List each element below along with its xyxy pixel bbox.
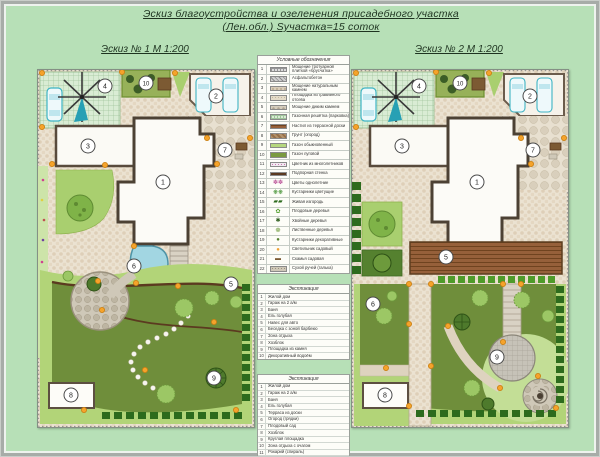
legend-row-label: Газон обыкновенный bbox=[290, 143, 349, 148]
explication-row-label: Круглая площадка bbox=[266, 437, 349, 442]
legend-swatch-shrub-flowering: ❋❋ bbox=[267, 189, 290, 198]
explication-row-label: Огород (грядки) bbox=[266, 417, 349, 422]
explication-row-number: 4 bbox=[258, 404, 266, 410]
flowers-icon: ✽✽ bbox=[273, 180, 283, 186]
plan1-drawing: 12345678910 bbox=[38, 70, 254, 427]
legend-swatch-soil bbox=[267, 132, 290, 141]
legend-swatch-lamp: ● bbox=[267, 246, 290, 255]
plot-marker-label: 6 bbox=[371, 302, 375, 309]
explication-row-number: 6 bbox=[258, 327, 266, 333]
legend-row: 18❁Лиственные деревья bbox=[258, 227, 349, 237]
plot-marker-label: 9 bbox=[495, 355, 499, 362]
explication-row-number: 8 bbox=[258, 430, 266, 436]
explication-row-label: Жилой дом bbox=[266, 384, 349, 389]
legend-row-number: 7 bbox=[258, 122, 267, 131]
wall-swatch bbox=[270, 172, 287, 176]
gravel-swatch bbox=[270, 95, 287, 101]
explication-row-number: 2 bbox=[258, 391, 266, 397]
legend-row-number: 5 bbox=[258, 103, 267, 112]
legend-swatch-wall bbox=[267, 170, 290, 179]
legend-row-label: Газон луговой bbox=[290, 152, 349, 157]
legend-row-label: Скамья садовая bbox=[290, 257, 349, 262]
legend-row-label: Светильник садовый bbox=[290, 247, 349, 252]
explication-row-number: 10 bbox=[258, 353, 266, 359]
plot-marker-label: 1 bbox=[161, 180, 165, 187]
shrub-flowering-icon: ❋❋ bbox=[273, 190, 283, 196]
legend-row-number: 2 bbox=[258, 75, 267, 84]
legend-row: 19●Кустарники декоративные bbox=[258, 236, 349, 246]
bench-icon: ▬ bbox=[275, 256, 281, 262]
legend-row-label: Хвойные деревья bbox=[290, 219, 349, 224]
legend-swatch-stream bbox=[267, 265, 290, 274]
wood-swatch bbox=[270, 124, 287, 130]
explication-row-number: 5 bbox=[258, 320, 266, 326]
conifer-icon: ✱ bbox=[275, 218, 280, 224]
plot-marker-label: 7 bbox=[531, 148, 535, 155]
legend-row-number: 22 bbox=[258, 265, 267, 274]
flowerbed-swatch bbox=[270, 162, 287, 168]
plot-marker-label: 2 bbox=[528, 94, 532, 101]
explication-row-label: Баня bbox=[266, 308, 349, 313]
explication-row-number: 7 bbox=[258, 424, 266, 430]
soil-swatch bbox=[270, 133, 287, 139]
legend-row-label: Настил из террасной доски bbox=[290, 124, 349, 129]
legend-row: 20●Светильник садовый bbox=[258, 246, 349, 256]
explication-row-number: 4 bbox=[258, 314, 266, 320]
legend-row-number: 16 bbox=[258, 208, 267, 217]
legend-row: 15▰▰Живая изгородь bbox=[258, 198, 349, 208]
legend-swatch-wood bbox=[267, 122, 290, 131]
explication-row-label: Беседка с зоной барбекю bbox=[266, 327, 349, 332]
explication-row-label: Плодовый сад bbox=[266, 424, 349, 429]
plot-marker-label: 10 bbox=[457, 82, 464, 88]
drawing-frame: Эскиз благоустройства и озеленения приса… bbox=[0, 0, 600, 457]
legend-swatch-lawn-light bbox=[267, 141, 290, 150]
explication-row-label: Гараж на 2 а/м bbox=[266, 391, 349, 396]
explication-row-label: Рокарий (спираль) bbox=[266, 450, 349, 455]
main-walk bbox=[409, 284, 431, 426]
legend-row-label: Площадка из гравийного отсева bbox=[290, 94, 349, 103]
plot-marker-label: 3 bbox=[86, 144, 90, 151]
explication-row-label: Декоративный водоём bbox=[266, 354, 349, 359]
plan-sheet-2: 12345678910 bbox=[351, 69, 569, 428]
legend-row-number: 21 bbox=[258, 255, 267, 264]
car-symbol bbox=[361, 88, 376, 121]
legend-row-number: 10 bbox=[258, 151, 267, 160]
explication-row-label: Зона отдыха bbox=[266, 334, 349, 339]
legend-table: Условные обозначения 1Мощение тротуарной… bbox=[257, 55, 350, 274]
asphalt-swatch bbox=[270, 76, 287, 82]
legend-swatch-tree-fruit: ✿ bbox=[267, 208, 290, 217]
plot-marker-label: 8 bbox=[383, 393, 387, 400]
legend-row: 1Мощение тротуарной плиткой «брусчатка» bbox=[258, 65, 349, 75]
plot-marker-label: 4 bbox=[103, 84, 107, 91]
legend-row: 7Настил из террасной доски bbox=[258, 122, 349, 132]
shrub-icon: ● bbox=[276, 237, 280, 243]
legend-row: 21▬Скамья садовая bbox=[258, 255, 349, 265]
drawing-title-line2: (Лен.обл.) Sучастка=15 соток bbox=[121, 21, 481, 34]
explication-row-number: 11 bbox=[258, 450, 266, 456]
drawing-title: Эскиз благоустройства и озеленения приса… bbox=[121, 8, 481, 34]
legend-row-number: 12 bbox=[258, 170, 267, 179]
legend-row-number: 19 bbox=[258, 236, 267, 245]
plot-marker-label: 7 bbox=[223, 148, 227, 155]
bigstone-swatch bbox=[270, 105, 287, 111]
legend-row-number: 14 bbox=[258, 189, 267, 198]
legend-swatch-paving bbox=[267, 65, 290, 74]
legend-swatch-flowers: ✽✽ bbox=[267, 179, 290, 188]
legend-row-number: 8 bbox=[258, 132, 267, 141]
legend-row: 11Цветник из многолетников bbox=[258, 160, 349, 170]
legend-row: 22Сухой ручей (галька) bbox=[258, 265, 349, 274]
tree-icon: ❁ bbox=[275, 228, 280, 234]
legend-row: 9Газон обыкновенный bbox=[258, 141, 349, 151]
explication-row-label: Навес для авто bbox=[266, 321, 349, 326]
lawn-light-swatch bbox=[270, 143, 287, 149]
legend-row-label: Грунт (огород) bbox=[290, 133, 349, 138]
legend-row-label: Мощение натуральным камнем bbox=[290, 84, 349, 93]
plot-marker-label: 9 bbox=[212, 376, 216, 383]
legend-swatch-bench: ▬ bbox=[267, 255, 290, 264]
stone-swatch bbox=[270, 86, 287, 92]
legend-swatch-flowerbed bbox=[267, 160, 290, 169]
explication-row-number: 3 bbox=[258, 397, 266, 403]
legend-row-label: Живая изгородь bbox=[290, 200, 349, 205]
legend-row-label: Мощение диким камнем bbox=[290, 105, 349, 110]
legend-swatch-shrub: ● bbox=[267, 236, 290, 245]
legend-row-number: 11 bbox=[258, 160, 267, 169]
car-symbol bbox=[47, 88, 62, 121]
legend-row-label: Лиственные деревья bbox=[290, 228, 349, 233]
plot-marker-label: 2 bbox=[214, 94, 218, 101]
legend-row-label: Плодовые деревья bbox=[290, 209, 349, 214]
explication-row-number: 8 bbox=[258, 340, 266, 346]
legend-row-number: 17 bbox=[258, 217, 267, 226]
explication-row-label: Баня bbox=[266, 398, 349, 403]
legend-swatch-asphalt bbox=[267, 75, 290, 84]
plot-marker-label: 6 bbox=[132, 264, 136, 271]
legend-swatch-hedge: ▰▰ bbox=[267, 198, 290, 207]
explication-row-label: Хозблок bbox=[266, 341, 349, 346]
legend-row: 3Мощение натуральным камнем bbox=[258, 84, 349, 94]
explication-row-number: 2 bbox=[258, 301, 266, 307]
plan-sheet-1: 12345678910 bbox=[37, 69, 255, 428]
legend-row-label: Асфальтобетон bbox=[290, 76, 349, 81]
legend-swatch-lawn-dark bbox=[267, 151, 290, 160]
explication-row-label: Гараж на 2 а/м bbox=[266, 301, 349, 306]
lawn-dark-swatch bbox=[270, 152, 287, 158]
legend-row-number: 13 bbox=[258, 179, 267, 188]
tree-fruit-icon: ✿ bbox=[275, 209, 280, 215]
hedge-icon: ▰▰ bbox=[273, 199, 282, 205]
explication-row-label: Зона отдыха с очагом bbox=[266, 444, 349, 449]
legend-row-number: 15 bbox=[258, 198, 267, 207]
plot-marker-label: 5 bbox=[444, 255, 448, 262]
legend-title: Условные обозначения bbox=[258, 56, 349, 65]
legend-row-label: Цветы однолетние bbox=[290, 181, 349, 186]
plot-marker-label: 5 bbox=[229, 282, 233, 289]
legend-row-label: Мощение тротуарной плиткой «брусчатка» bbox=[290, 65, 349, 74]
paving-swatch bbox=[270, 67, 287, 73]
legend-row-label: Газонная решётка (парковка) bbox=[290, 114, 349, 119]
plot-marker-label: 3 bbox=[400, 144, 404, 151]
spiral-rockery bbox=[523, 379, 557, 413]
legend-row-label: Цветник из многолетников bbox=[290, 162, 349, 167]
legend-row: 16✿Плодовые деревья bbox=[258, 208, 349, 218]
stream-swatch bbox=[270, 266, 287, 272]
lamp-icon: ● bbox=[276, 247, 280, 253]
explication-row-label: Ель голубая bbox=[266, 404, 349, 409]
explication-row-label: Жилой дом bbox=[266, 295, 349, 300]
explication-table-2: Экспликация 1Жилой дом2Гараж на 2 а/м3Ба… bbox=[257, 374, 350, 457]
explication-row-number: 9 bbox=[258, 437, 266, 443]
explication-row-label: Терраса из доски bbox=[266, 411, 349, 416]
legend-row: 8Грунт (огород) bbox=[258, 132, 349, 142]
explication-row-number: 1 bbox=[258, 294, 266, 300]
explication-row-number: 7 bbox=[258, 334, 266, 340]
legend-row-label: Подпорная стенка bbox=[290, 171, 349, 176]
explication-row-label: Хозблок bbox=[266, 431, 349, 436]
legend-swatch-tree: ❁ bbox=[267, 227, 290, 236]
legend-row: 6Газонная решётка (парковка) bbox=[258, 113, 349, 123]
explication-row-number: 10 bbox=[258, 443, 266, 449]
legend-row: 5Мощение диким камнем bbox=[258, 103, 349, 113]
grid-swatch bbox=[270, 114, 287, 120]
explication-row-number: 9 bbox=[258, 347, 266, 353]
plot-marker-label: 1 bbox=[475, 180, 479, 187]
legend-row-number: 4 bbox=[258, 94, 267, 103]
legend-row: 4Площадка из гравийного отсева bbox=[258, 94, 349, 104]
explication-row-label: Площадка из камня bbox=[266, 347, 349, 352]
plot-marker-label: 10 bbox=[143, 82, 150, 88]
explication-row-label: Ель голубая bbox=[266, 314, 349, 319]
legend-row: 14❋❋Кустарники цветущие bbox=[258, 189, 349, 199]
legend-row-number: 1 bbox=[258, 65, 267, 74]
legend-row: 17✱Хвойные деревья bbox=[258, 217, 349, 227]
legend-row: 2Асфальтобетон bbox=[258, 75, 349, 85]
explication-row-number: 3 bbox=[258, 307, 266, 313]
legend-row: 12Подпорная стенка bbox=[258, 170, 349, 180]
legend-swatch-bigstone bbox=[267, 103, 290, 112]
legend-swatch-gravel bbox=[267, 94, 290, 103]
legend-row-number: 18 bbox=[258, 227, 267, 236]
legend-swatch-grid bbox=[267, 113, 290, 122]
legend-swatch-stone bbox=[267, 84, 290, 93]
plot-marker-label: 8 bbox=[69, 393, 73, 400]
explication-row-number: 6 bbox=[258, 417, 266, 423]
round-shrub bbox=[67, 195, 93, 221]
explication1-title: Экспликация bbox=[258, 285, 349, 294]
plot-marker-label: 4 bbox=[417, 84, 421, 91]
explication-table-1: Экспликация 1Жилой дом2Гараж на 2 а/м3Ба… bbox=[257, 284, 350, 360]
legend-row-number: 6 bbox=[258, 113, 267, 122]
legend-row: 13✽✽Цветы однолетние bbox=[258, 179, 349, 189]
legend-row: 10Газон луговой bbox=[258, 151, 349, 161]
legend-swatch-conifer: ✱ bbox=[267, 217, 290, 226]
legend-row-label: Сухой ручей (галька) bbox=[290, 266, 349, 271]
legend-row-number: 3 bbox=[258, 84, 267, 93]
explication-row: 10Декоративный водоём bbox=[258, 353, 349, 359]
plan2-drawing: 12345678910 bbox=[352, 70, 568, 427]
explication-row-number: 5 bbox=[258, 410, 266, 416]
explication-row-number: 1 bbox=[258, 384, 266, 390]
legend-row-number: 20 bbox=[258, 246, 267, 255]
sketch1-header: Эскиз № 1 М 1:200 bbox=[37, 44, 253, 55]
legend-row-label: Кустарники декоративные bbox=[290, 238, 349, 243]
legend-row-number: 9 bbox=[258, 141, 267, 150]
legend-row-label: Кустарники цветущие bbox=[290, 190, 349, 195]
legend-column: Условные обозначения 1Мощение тротуарной… bbox=[257, 55, 350, 457]
sketch2-header: Эскиз № 2 М 1:200 bbox=[351, 44, 567, 55]
wood-terrace bbox=[410, 242, 562, 274]
drawing-title-line1: Эскиз благоустройства и озеленения приса… bbox=[121, 8, 481, 21]
